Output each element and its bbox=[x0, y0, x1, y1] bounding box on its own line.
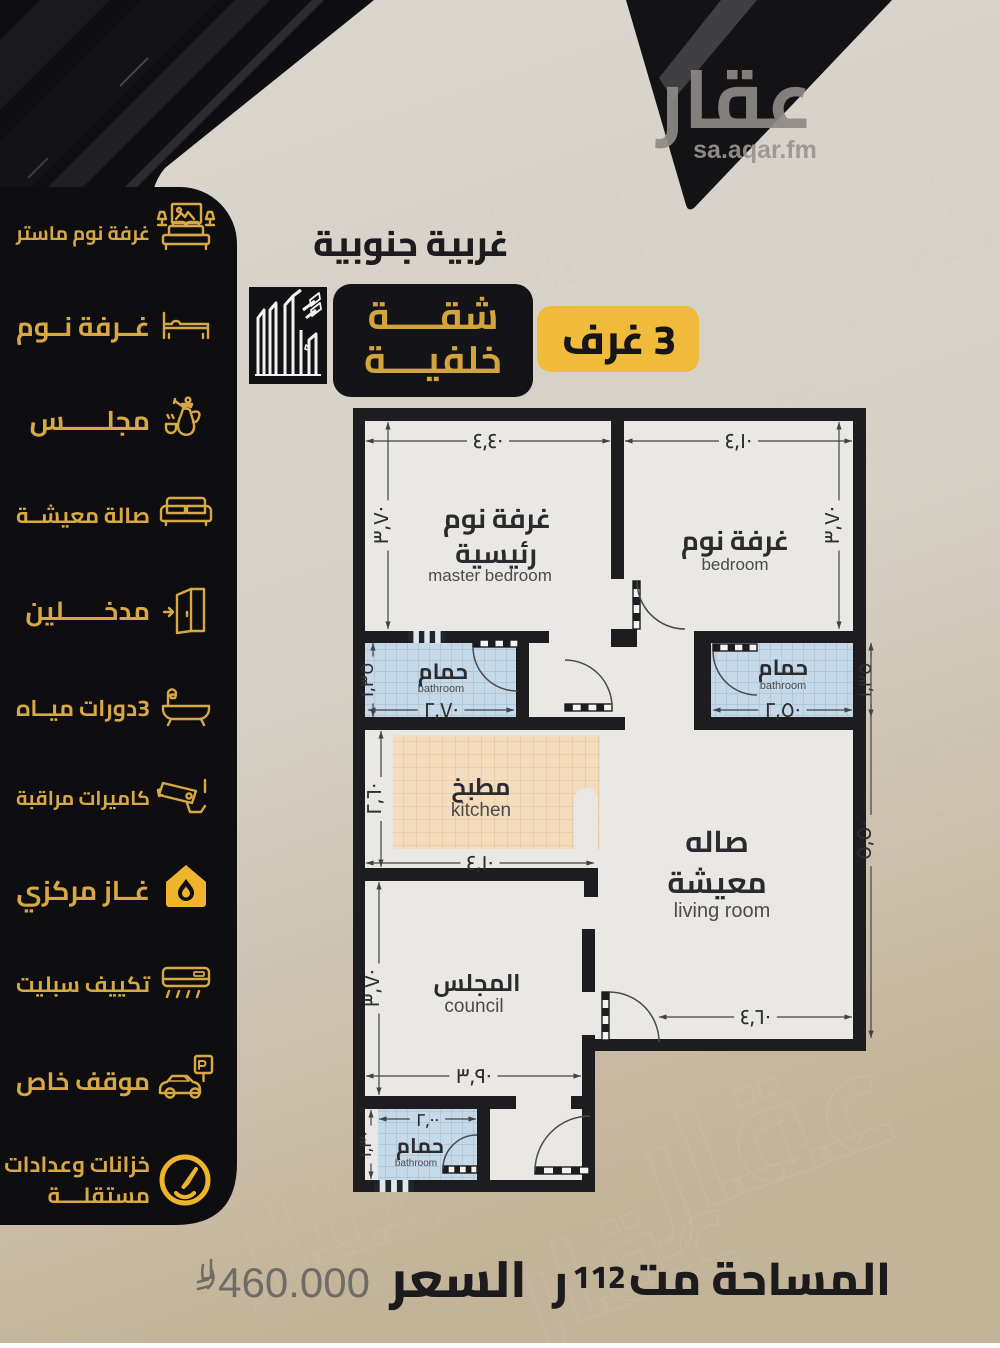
svg-text:sa.aqar.fm: sa.aqar.fm bbox=[693, 136, 817, 164]
svg-text:master bedroom: master bedroom bbox=[428, 566, 552, 585]
svg-text:kitchen: kitchen bbox=[451, 800, 511, 821]
svg-text:bathroom: bathroom bbox=[418, 683, 464, 695]
svg-text:bathroom: bathroom bbox=[760, 680, 806, 692]
svg-text:bedroom: bedroom bbox=[701, 555, 768, 574]
svg-text:460.000: 460.000 bbox=[218, 1259, 370, 1306]
svg-text:living room: living room bbox=[674, 900, 771, 922]
svg-text:bathroom: bathroom bbox=[395, 1158, 437, 1169]
svg-text:council: council bbox=[444, 996, 503, 1017]
